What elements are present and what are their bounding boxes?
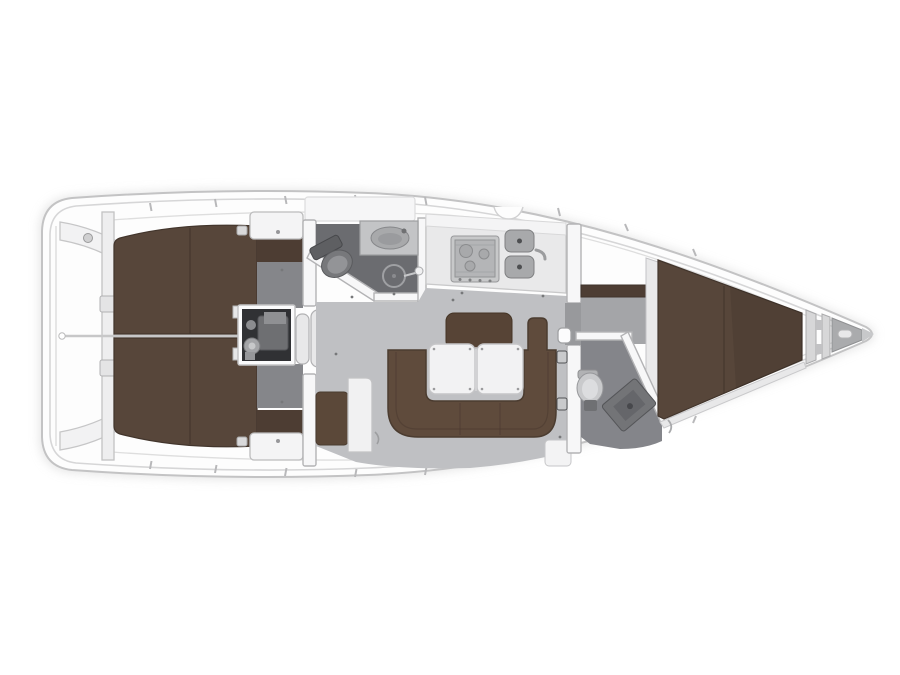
bulkhead-fwd-upper — [567, 224, 581, 303]
cabin-door-handle — [558, 328, 571, 343]
anchor-locker-step-2 — [816, 344, 822, 354]
door-hinge-2 — [557, 398, 567, 410]
companionway-hatch — [305, 197, 415, 221]
engine-head — [264, 312, 286, 324]
fwd-toilet-base — [584, 400, 597, 411]
forward-cabin-shelf — [581, 285, 647, 297]
aft-head-right-wall — [418, 218, 426, 302]
aft-head-bottom-wall — [374, 293, 420, 301]
yacht-floor-plan — [0, 0, 900, 675]
anchor-locker-step-1 — [816, 320, 822, 330]
berth-extension-starboard — [257, 410, 304, 434]
sink-drain-1 — [517, 239, 522, 244]
wardrobe-port-hinge — [237, 226, 247, 235]
engine-filter — [246, 320, 256, 330]
stove-burner-3 — [465, 261, 475, 271]
stove-burner-2 — [479, 249, 489, 259]
cabin-floor-port — [257, 262, 303, 308]
stove-top — [455, 240, 495, 277]
cabin-floor-starboard-dot — [281, 401, 284, 404]
galley — [426, 214, 566, 293]
wardrobe-starboard — [250, 433, 303, 460]
fwd-toilet-seat — [582, 379, 598, 399]
salon — [316, 288, 571, 468]
engine-mount — [245, 352, 255, 360]
cabin-floor-starboard — [257, 364, 303, 408]
stove-burner-1 — [460, 245, 473, 258]
salon-partition — [348, 378, 372, 452]
wardrobe-starboard-hinge — [237, 437, 247, 446]
wardrobe-port — [250, 212, 303, 239]
salon-table-right — [477, 344, 523, 394]
engine-pulley-hub — [249, 343, 256, 350]
stove-knob-2 — [469, 279, 472, 282]
door-hinge-1 — [557, 351, 567, 363]
bulkhead-aft-lower — [303, 374, 316, 466]
centerline-cap — [59, 333, 65, 339]
galley-stove — [451, 236, 499, 283]
salon-table-left — [429, 344, 475, 394]
stove-knob-4 — [489, 280, 492, 283]
aft-head-faucet — [402, 229, 407, 234]
cabin-floor-port-dot — [281, 269, 284, 272]
stove-knob-1 — [459, 278, 462, 281]
wardrobe-starboard-knob — [276, 439, 280, 443]
anchor-locker-bar-1 — [806, 310, 816, 364]
salon-side-bench — [316, 392, 348, 445]
sink-drain-2 — [517, 265, 522, 270]
engine-compartment — [233, 305, 295, 365]
shower-drain-dot — [392, 274, 396, 278]
aft-head-sink-basin — [378, 233, 402, 245]
wardrobe-port-knob — [276, 230, 280, 234]
step-1 — [296, 314, 309, 364]
bulkhead-fwd-lower — [567, 345, 581, 453]
stern-fitting — [84, 234, 93, 243]
bow-roller — [838, 330, 852, 338]
berth-extension-port — [257, 238, 304, 262]
stove-knob-3 — [479, 279, 482, 282]
anchor-locker-bar-2 — [822, 314, 830, 359]
shower-wand — [415, 267, 423, 275]
